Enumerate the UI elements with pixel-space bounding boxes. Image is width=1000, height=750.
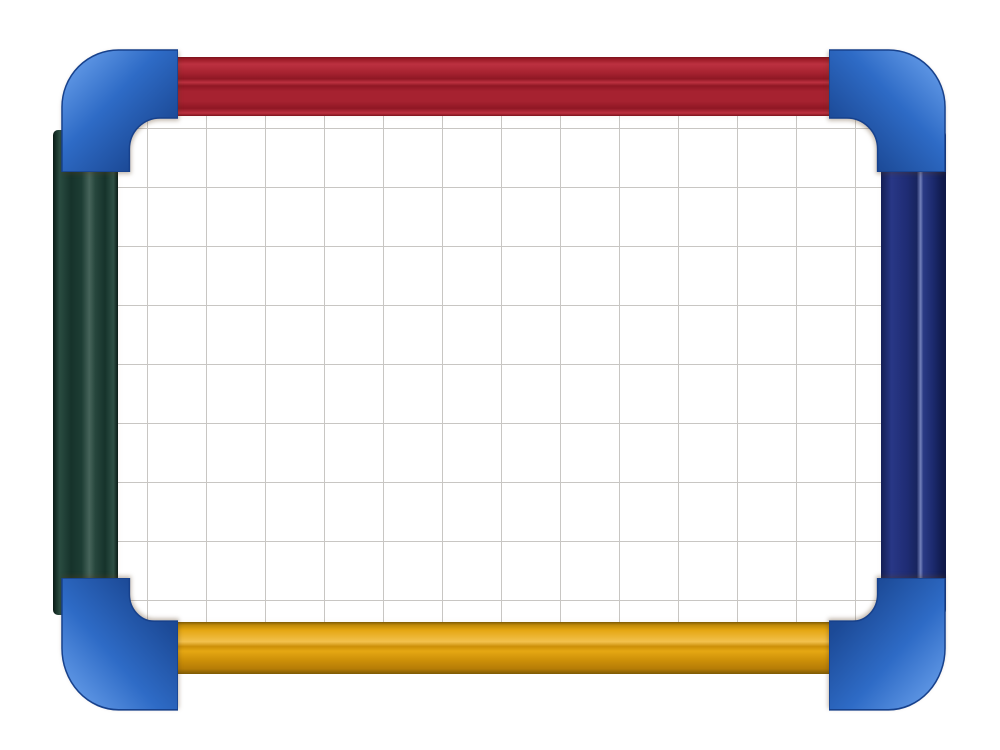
corner-cap-shape bbox=[829, 50, 945, 172]
whiteboard-grid-surface bbox=[112, 110, 888, 628]
corner-cap-bottom-right bbox=[829, 578, 948, 713]
corner-cap-bottom-left bbox=[59, 578, 178, 713]
frame-rail-top-red bbox=[150, 57, 850, 116]
corner-cap-top-left bbox=[59, 47, 178, 172]
frame-rail-right-navy bbox=[881, 130, 946, 615]
corner-cap-shape bbox=[62, 50, 178, 172]
image-description: A children's magnetic dry-wipe whiteboar… bbox=[0, 0, 1, 1]
corner-cap-shape bbox=[62, 578, 178, 710]
product-photo: A children's magnetic dry-wipe whiteboar… bbox=[0, 0, 1000, 750]
frame-rail-left-green bbox=[53, 130, 118, 615]
corner-cap-shape bbox=[829, 578, 945, 710]
corner-cap-top-right bbox=[829, 47, 948, 172]
frame-rail-bottom-yellow bbox=[150, 622, 850, 674]
